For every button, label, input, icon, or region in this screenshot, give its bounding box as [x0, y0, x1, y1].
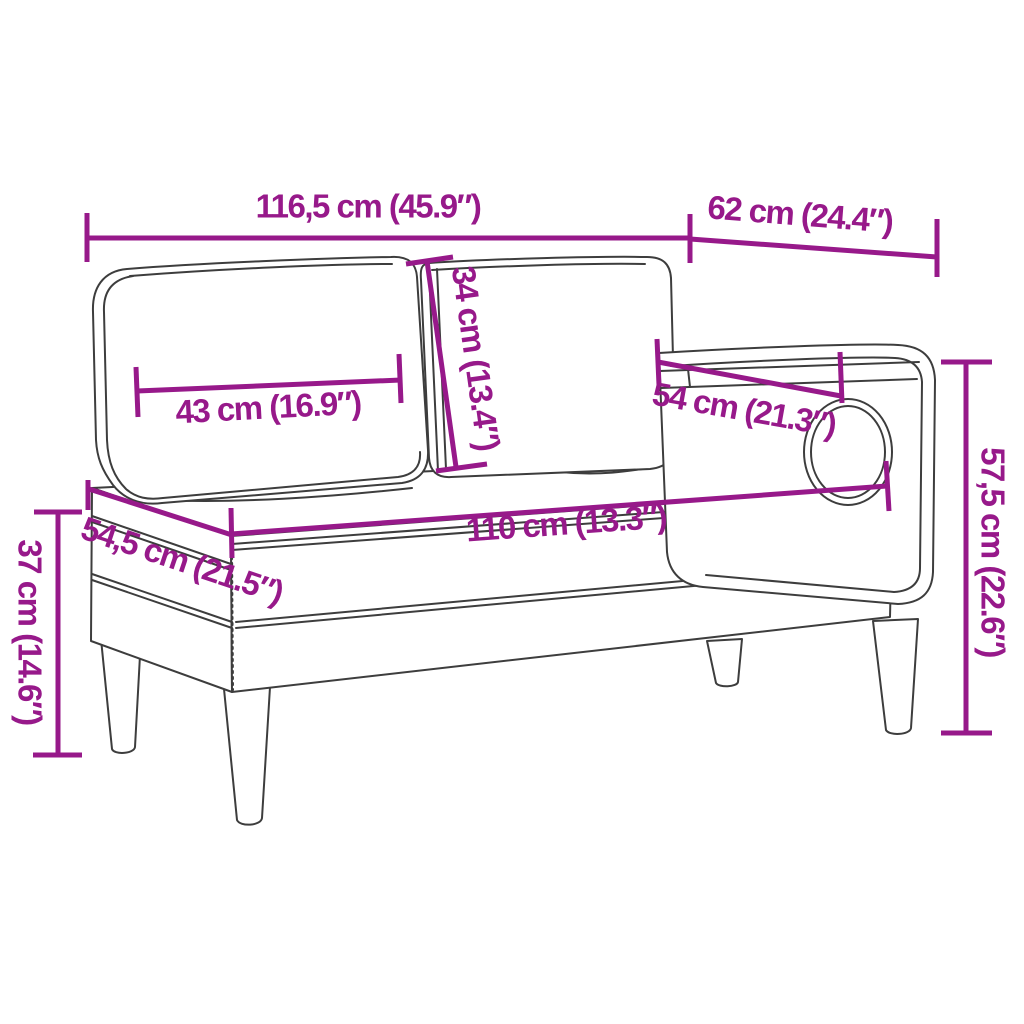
leg	[707, 639, 742, 686]
dim-label-back-cushion-width: 43 cm (16.9″)	[175, 386, 362, 429]
dimension-diagram: 116,5 cm (45.9″) 62 cm (24.4″) 34 cm (13…	[0, 0, 1024, 1024]
dim-label-total-height: 57,5 cm (22.6″)	[977, 447, 1010, 657]
dim-label-base-height: 37 cm (14.6″)	[14, 539, 47, 724]
leg	[873, 619, 918, 734]
leg	[224, 687, 270, 825]
dim-label-overall-width: 116,5 cm (45.9″)	[256, 190, 481, 223]
